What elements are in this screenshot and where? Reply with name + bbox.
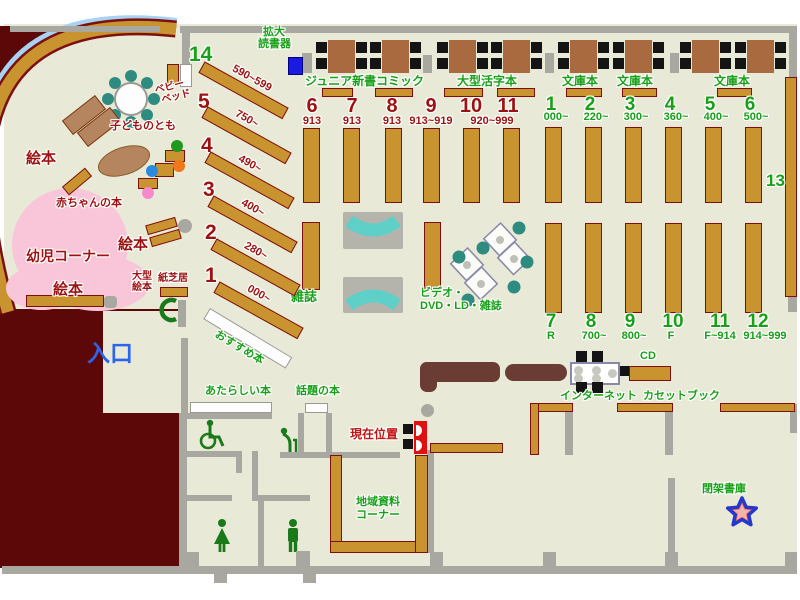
new-books-shelf: [190, 402, 272, 413]
section-number: 10: [661, 312, 685, 332]
section-range: 914~999: [736, 331, 794, 343]
section-range: 500~: [738, 112, 774, 124]
section-range: 913~919: [404, 116, 458, 128]
label-bunko: 文庫本: [714, 75, 750, 88]
woman-icon: [214, 519, 230, 552]
shelf: [720, 403, 795, 412]
pillar: [296, 551, 310, 566]
local-shelf-bottom: [330, 541, 428, 553]
label-kodomo-no-tomo: 子どものとも: [110, 121, 176, 133]
wall-corridor-stub: [178, 300, 186, 327]
video-shelf: [424, 222, 441, 290]
reading-table: [735, 40, 786, 73]
stack-shelf: [463, 128, 480, 203]
pillar: [785, 552, 797, 566]
pillar: [670, 53, 679, 73]
wall-toilet-h2: [186, 495, 232, 501]
stack-shelf: [665, 223, 682, 313]
library-floor-map: 拡大 読書器 ジュニア新書 コミック 大型活字本 文庫本 文庫本 文庫本 6 7…: [0, 0, 800, 600]
label-bunko: 文庫本: [617, 75, 653, 88]
section-range: 360~: [658, 112, 694, 124]
magnifier-label: 拡大: [263, 27, 285, 39]
door-arc-icon: [162, 300, 176, 320]
wall-right-top: [789, 33, 797, 77]
cushion-blue: [146, 165, 158, 177]
reading-table: [613, 40, 664, 73]
section-range: R: [543, 331, 559, 343]
stack-shelf: [705, 223, 722, 313]
stack-shelf: [385, 128, 402, 203]
topical-books-shelf: [305, 403, 328, 413]
pillar-stub: [214, 574, 227, 583]
service-counter2: [505, 364, 567, 381]
area-13-number: 13: [766, 172, 785, 190]
chair: [620, 366, 629, 376]
wheelchair-icon: [201, 420, 223, 448]
magnifier-label2: 読書器: [258, 39, 291, 51]
stack-shelf: [545, 223, 562, 313]
pillar: [423, 55, 432, 73]
label-video: ビデオ・: [420, 288, 464, 300]
kids-round-table: [115, 83, 147, 115]
section-number: 10: [458, 96, 484, 117]
label-kamishibai: 紙芝居: [158, 274, 188, 285]
wall-stub-internet: [565, 412, 573, 455]
label-junior-shinsho: ジュニア新書: [305, 75, 376, 88]
pillar: [186, 552, 199, 566]
pillar-corridor: [104, 296, 117, 308]
section-number: 6: [303, 96, 321, 117]
label-new-books: あたらしい本: [205, 386, 271, 398]
section-number: 9: [422, 96, 440, 117]
pillar: [545, 53, 554, 73]
section-number: 11: [708, 312, 732, 332]
section-number: 9: [620, 312, 640, 332]
service-counter-leg: [420, 362, 437, 392]
section-number: 8: [581, 312, 601, 332]
label-local-materials2: コーナー: [340, 510, 416, 522]
wall-bottom: [2, 566, 797, 574]
section-range: 920~999: [464, 116, 520, 128]
shelf: [430, 443, 503, 453]
chair: [576, 351, 587, 362]
pillar-stub: [303, 574, 316, 583]
wall-stub-cassette: [665, 412, 673, 455]
wall-top-left: [10, 26, 160, 32]
label-cd: CD: [640, 351, 656, 363]
label-cassette-books: カセットブック: [643, 391, 720, 403]
section-number: 8: [383, 96, 401, 117]
reading-table: [370, 40, 421, 73]
reading-table: [437, 40, 488, 73]
stack-shelf: [585, 127, 602, 203]
wall-right-mid: [788, 297, 797, 312]
section-range: 913: [336, 116, 368, 128]
section-range: 913: [296, 116, 328, 128]
l-shelf-side: [530, 403, 539, 455]
label-large-picture-books2: 絵本: [132, 283, 152, 294]
reading-table: [558, 40, 609, 73]
stack-shelf: [665, 127, 682, 203]
section-number: 7: [541, 312, 561, 332]
wall-toilet-v2: [258, 495, 264, 567]
label-bunko: 文庫本: [562, 75, 598, 88]
label-large-picture-books: 大型: [132, 272, 152, 283]
stack-shelf: [343, 128, 360, 203]
wall-toilet-h1: [186, 451, 242, 457]
man-icon: [288, 519, 298, 552]
label-picture-books: 絵本: [118, 237, 148, 253]
magnifier-device: [288, 57, 303, 75]
section-range: 220~: [578, 112, 614, 124]
stack-shelf: [705, 127, 722, 203]
section-range: F~914: [700, 331, 740, 343]
wall-toilet-v1: [252, 451, 258, 501]
label-local-materials: 地域資料: [340, 497, 416, 509]
closed-stacks-star: [728, 498, 757, 525]
section-range: 400~: [698, 112, 734, 124]
label-video2: DVD・LD・雑誌: [420, 301, 502, 313]
label-topical-books: 話題の本: [296, 386, 340, 398]
cd-shelf: [629, 366, 671, 381]
wall-local-right: [427, 450, 434, 553]
pillar: [302, 53, 312, 73]
stack-shelf: [625, 127, 642, 203]
stack-shelf: [745, 127, 762, 203]
drinking-fountain-icon: [281, 428, 296, 452]
cassette-shelf: [617, 403, 673, 412]
stack-shelf: [545, 127, 562, 203]
label-infant-corner: 幼児コーナー: [26, 249, 110, 264]
section-range: 700~: [576, 331, 612, 343]
reading-table: [680, 40, 731, 73]
cushion-pink: [142, 187, 154, 199]
wall-toilet-left: [179, 413, 187, 566]
kamishibai-shelf: [160, 287, 188, 297]
wall-closed-stacks: [668, 478, 675, 567]
label-picture-books: 絵本: [53, 282, 83, 298]
stack-shelf: [503, 128, 520, 203]
cushion-green: [171, 140, 183, 152]
label-picture-books: 絵本: [26, 151, 56, 167]
label-current-position: 現在位置: [350, 428, 398, 441]
section-range: F: [663, 331, 679, 343]
section-range: 000~: [538, 112, 574, 124]
pillar-round: [421, 404, 434, 417]
label-baby-books: 赤ちゃんの本: [56, 198, 122, 210]
stack-shelf: [745, 223, 762, 313]
stack-shelf: [625, 223, 642, 313]
wall-corridor: [181, 338, 188, 413]
stack-shelf: [423, 128, 440, 203]
section-number: 7: [343, 96, 361, 117]
wall-newbooks: [186, 413, 272, 419]
local-shelf-right: [415, 455, 428, 553]
label-large-print: 大型活字本: [457, 75, 517, 88]
pillar: [430, 552, 443, 566]
chair: [592, 351, 603, 362]
diag-number: 1: [205, 265, 217, 287]
label-entrance: 入口: [87, 341, 133, 365]
current-position-marker: [403, 421, 429, 454]
section-number: 12: [746, 312, 770, 332]
wall-toilet-stub: [236, 451, 242, 473]
reading-table: [316, 40, 367, 73]
reading-table: [491, 40, 542, 73]
section-range: 300~: [618, 112, 654, 124]
label-comic: コミック: [376, 75, 424, 88]
label-closed-stacks: 閉架書庫: [702, 484, 746, 496]
section-number: 11: [494, 96, 522, 117]
stack-shelf-13: [785, 77, 797, 297]
cushion-orange: [173, 160, 185, 172]
pillar-round: [178, 219, 192, 233]
label-internet: インターネット: [560, 391, 637, 403]
section-range: 800~: [616, 331, 652, 343]
pillar: [543, 552, 556, 566]
stack-shelf: [585, 223, 602, 313]
wall-toilet-h3: [258, 495, 310, 501]
